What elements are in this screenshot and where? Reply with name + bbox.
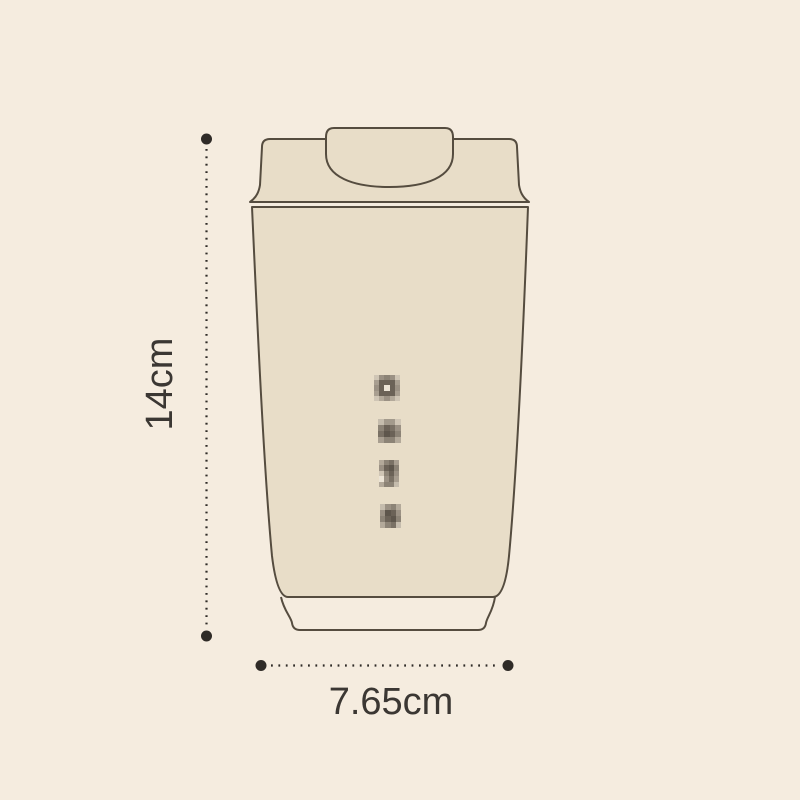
censored-mark — [378, 419, 401, 443]
product-dimension-diagram: 14cm 7.65cm — [0, 0, 800, 800]
censored-mark — [380, 504, 401, 528]
cup-body — [252, 207, 528, 597]
censored-mark — [379, 460, 399, 487]
height-line-bottom-dot — [201, 631, 212, 642]
width-dimension-line — [256, 660, 514, 671]
censored-mark — [374, 375, 400, 401]
cup-base — [281, 597, 495, 630]
height-dimension-label: 14cm — [141, 338, 179, 431]
width-line-left-dot — [256, 660, 267, 671]
height-line-top-dot — [201, 134, 212, 145]
width-dimension-label: 7.65cm — [329, 683, 454, 721]
tumbler-line-drawing — [0, 0, 800, 800]
lid-flip-button — [326, 128, 453, 187]
width-line-right-dot — [503, 660, 514, 671]
height-dimension-line — [201, 134, 212, 642]
